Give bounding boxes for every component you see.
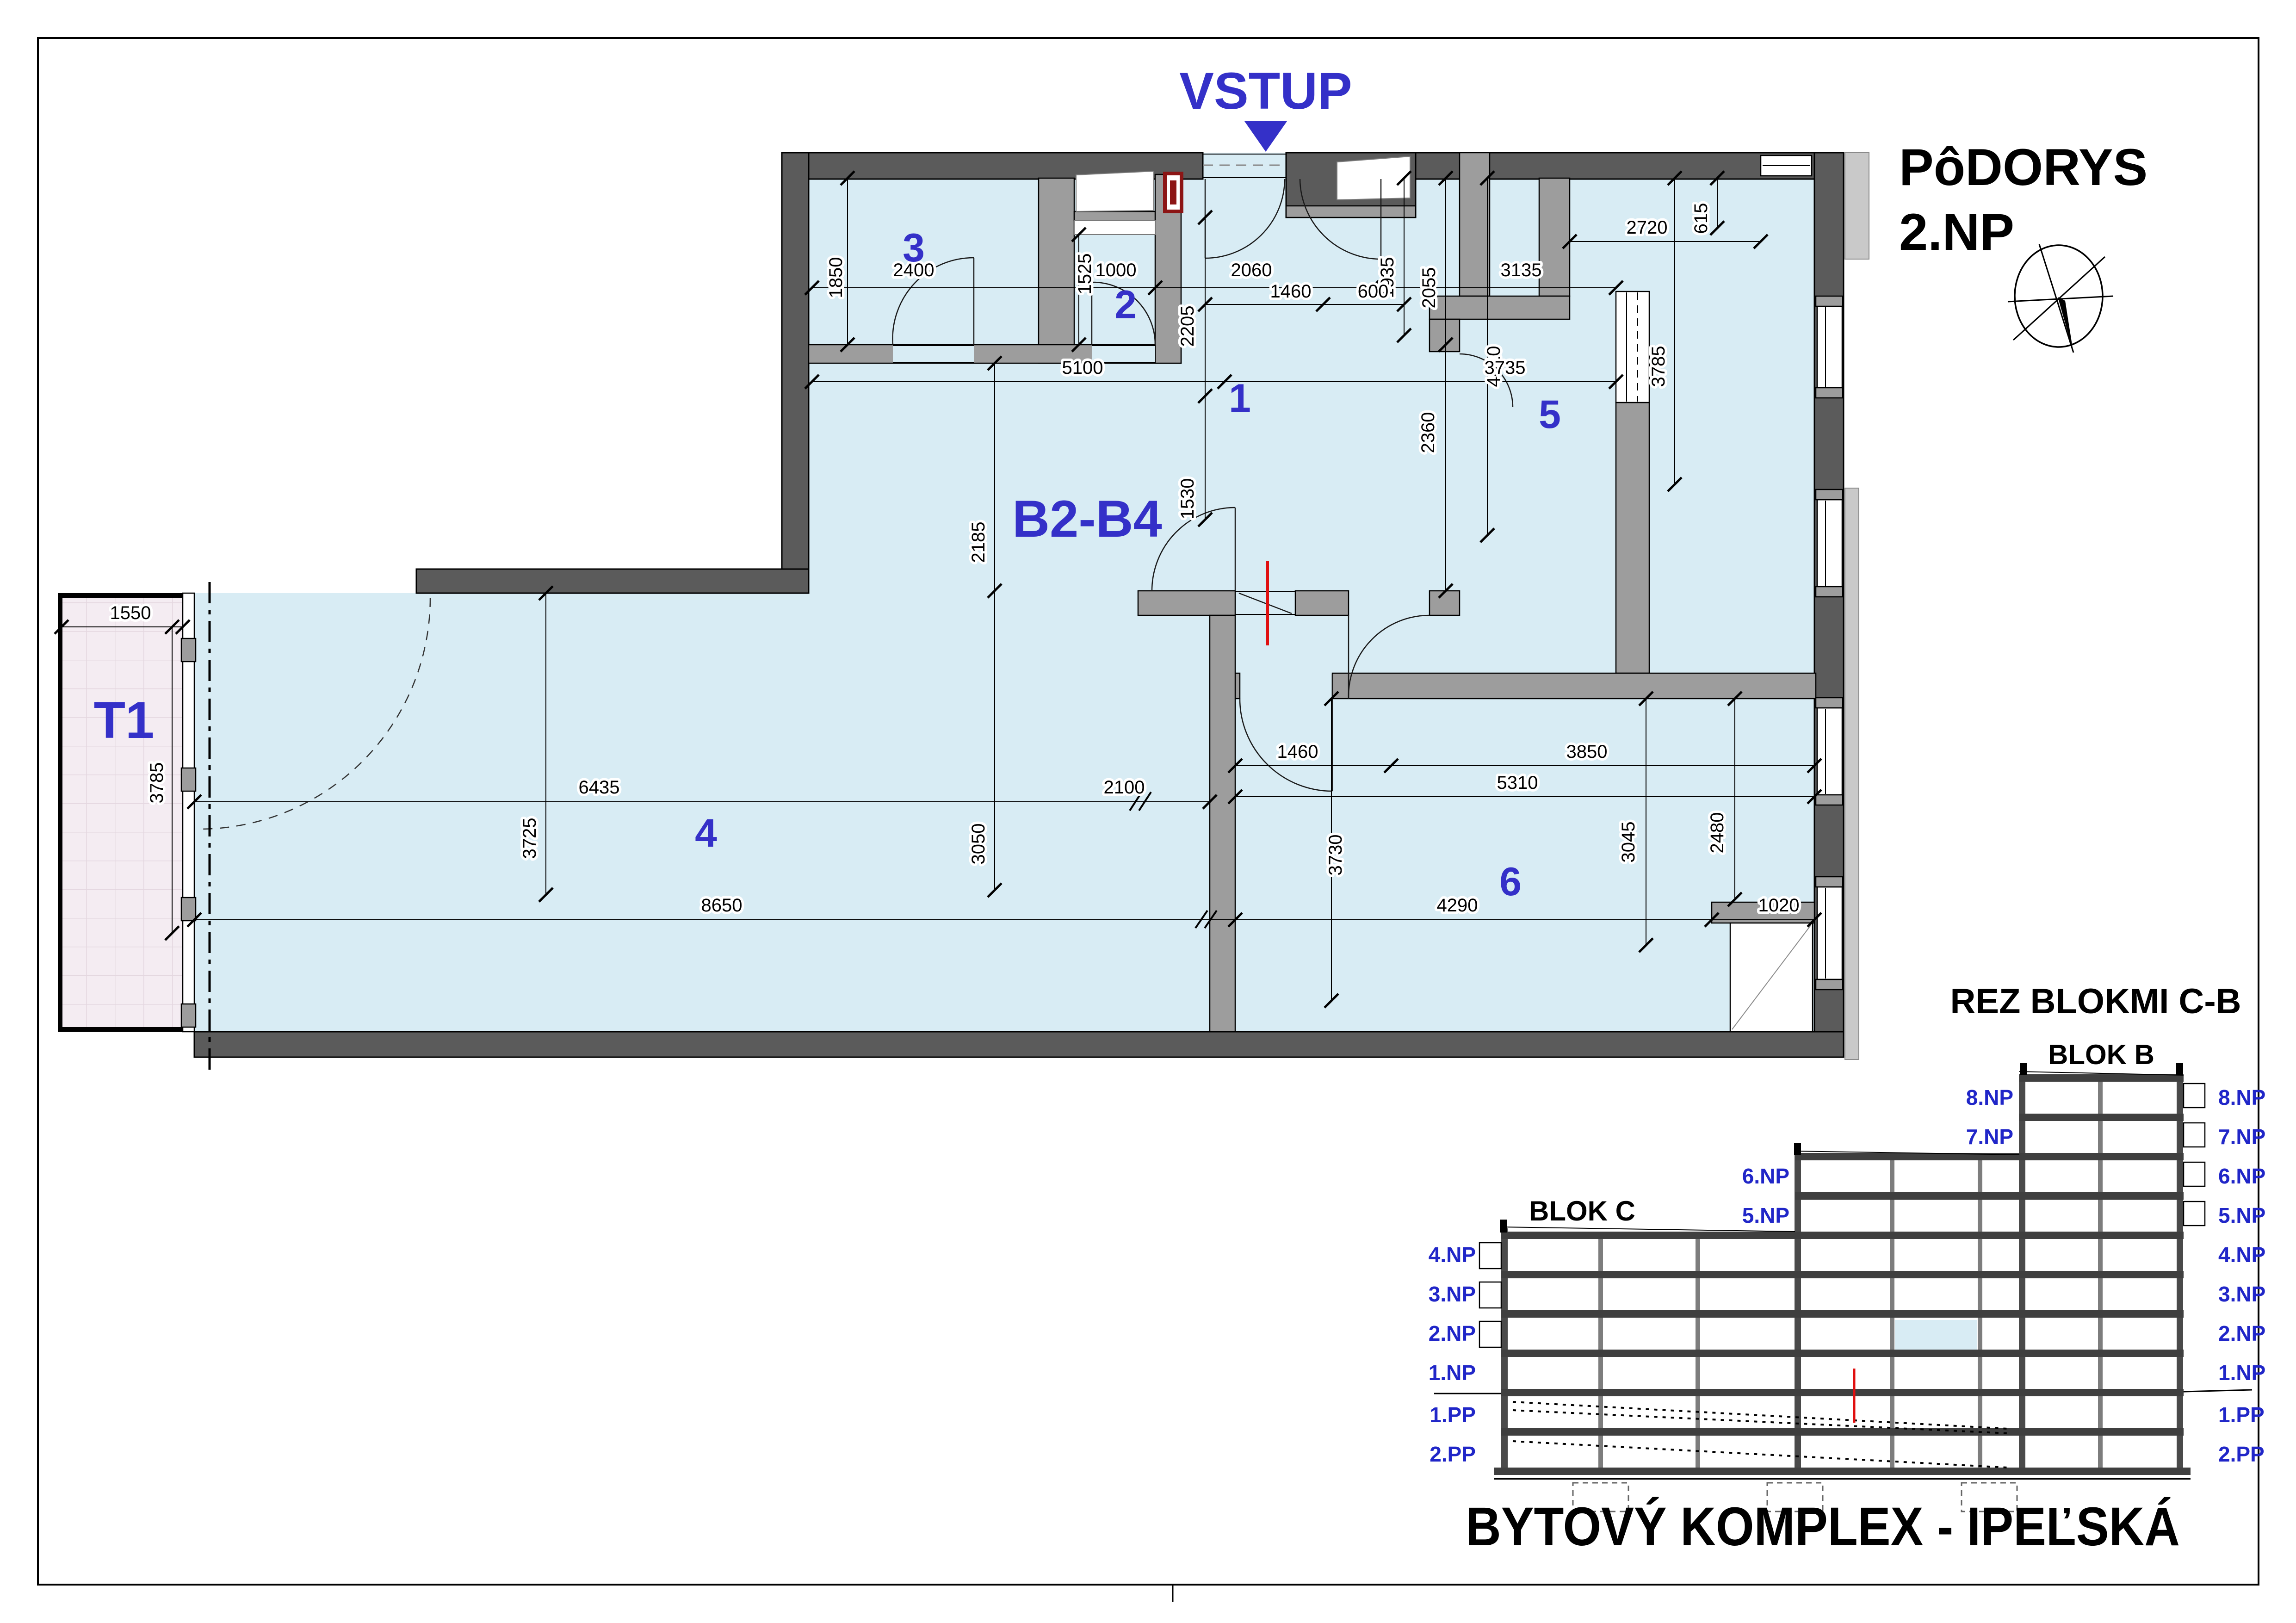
dim-label: 2720 [1627,217,1668,238]
dim-label: 600 [1358,281,1389,302]
dim-label: 1525 [1075,254,1095,295]
dim-label: 8650 [701,895,743,916]
level-label: 1.NP [2218,1361,2265,1385]
section-title: REZ BLOKMI C-B [1950,982,2241,1021]
dim-label: 1530 [1177,478,1198,520]
plan-title-line2: 2.NP [1899,203,2014,261]
entrance-marker: VSTUP [1179,62,1352,152]
level-label: 6.NP [1742,1164,1789,1188]
dim-label: 3045 [1618,822,1639,863]
entrance-label: VSTUP [1179,62,1352,120]
level-label: 3.NP [1429,1282,1476,1306]
terrace-label: T1 [94,691,155,749]
level-label: 2.NP [2218,1321,2265,1345]
dim-label: 1460 [1270,281,1312,302]
floor-plan-drawing: 1850 2400 1525 1000 2060 1935 2055 2720 … [0,0,2296,1623]
dim-label: 3735 [1485,358,1526,378]
dim-label: 1000 [1095,260,1137,280]
level-label: 7.NP [2218,1125,2265,1149]
drawing-sheet: 1850 2400 1525 1000 2060 1935 2055 2720 … [0,0,2296,1623]
dim-label: 1850 [826,257,846,298]
project-title: BYTOVÝ KOMPLEX - IPEĽSKÁ [1466,1496,2180,1557]
apartment-label: B2-B4 [1012,490,1162,548]
dim-label: 3725 [520,818,540,859]
level-label: 7.NP [1966,1125,2013,1149]
room-number-2: 2 [1114,283,1137,327]
dim-label: 3730 [1325,835,1346,876]
dim-label: 1460 [1277,742,1318,762]
level-label: 8.NP [1966,1085,2013,1109]
blok-b-label: BLOK B [2048,1039,2154,1070]
dim-label: 5100 [1062,358,1103,378]
dim-label: 6435 [579,777,620,798]
entry-shaft-window [1337,156,1410,200]
dim-label: 4290 [1437,895,1478,916]
dim-label: 3850 [1566,742,1608,762]
room-number-4: 4 [695,811,717,855]
section-structure [1434,1063,2252,1511]
sheet-title: PôDORYS 2.NP [1899,138,2147,261]
level-label: 5.NP [2218,1203,2265,1227]
dim-label: 1550 [110,603,151,623]
section-drawing: REZ BLOKMI C-B BLOK B BLOK C [1429,982,2266,1511]
level-label: 2.PP [1430,1442,1476,1466]
dim-label: 5310 [1497,773,1538,793]
level-label: 8.NP [2218,1085,2265,1109]
entrance-arrow-icon [1244,121,1287,152]
compass-icon [2008,244,2113,353]
blok-c-label: BLOK C [1529,1196,1635,1227]
dim-label: 615 [1691,203,1711,234]
dim-label: 1020 [1758,895,1800,916]
level-label: 1.PP [1430,1403,1476,1427]
dim-label: 2205 [1177,306,1198,347]
dim-label: 3135 [1501,260,1542,280]
dim-label: 3785 [147,762,167,804]
room-number-5: 5 [1539,392,1561,437]
dim-label: 2055 [1419,267,1439,309]
dim-label: 2360 [1418,412,1438,453]
room-number-1: 1 [1229,376,1251,421]
dim-label: 2480 [1707,812,1727,854]
level-label: 6.NP [2218,1164,2265,1188]
dim-label: 3785 [1648,346,1669,387]
dim-label: 2060 [1231,260,1272,280]
level-label: 4.NP [2218,1243,2265,1267]
room-number-6: 6 [1499,860,1522,904]
level-label: 4.NP [1429,1243,1476,1267]
level-label: 2.NP [1429,1321,1476,1345]
dim-label: 2185 [968,522,989,563]
dim-label: 2100 [1104,777,1145,798]
shaft-window [1076,171,1154,211]
level-label: 3.NP [2218,1282,2265,1306]
level-label: 1.PP [2218,1403,2265,1427]
level-label: 5.NP [1742,1203,1789,1227]
plan-title-line1: PôDORYS [1899,138,2147,196]
room-number-3: 3 [903,226,925,270]
highlighted-flat-cell [1895,1320,1977,1352]
level-label: 2.PP [2218,1442,2265,1466]
dim-label: 3050 [968,824,989,865]
level-label: 1.NP [1429,1361,1476,1385]
